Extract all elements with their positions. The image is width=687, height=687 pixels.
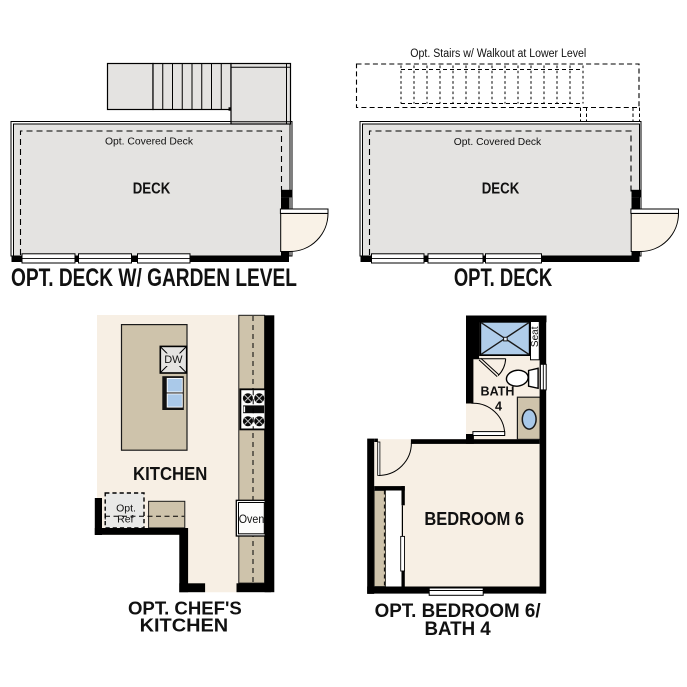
svg-text:Opt. Covered Deck: Opt. Covered Deck (105, 137, 194, 148)
svg-text:4: 4 (495, 400, 502, 414)
svg-text:DECK: DECK (482, 181, 520, 198)
svg-text:Ref: Ref (117, 513, 133, 525)
svg-text:BATH 4: BATH 4 (424, 619, 491, 640)
svg-text:DW: DW (164, 354, 183, 366)
svg-text:KITCHEN: KITCHEN (140, 615, 229, 635)
svg-text:Opt. Covered Deck: Opt. Covered Deck (454, 137, 542, 148)
svg-text:Oven: Oven (239, 512, 265, 526)
svg-text:Seat: Seat (530, 326, 541, 347)
svg-text:DECK: DECK (133, 181, 171, 198)
svg-text:OPT. DECK W/ GARDEN LEVEL: OPT. DECK W/ GARDEN LEVEL (11, 264, 297, 292)
svg-text:Opt. Stairs w/ Walkout at Lowe: Opt. Stairs w/ Walkout at Lower Level (410, 48, 586, 60)
svg-text:KITCHEN: KITCHEN (133, 463, 207, 484)
svg-text:OPT. DECK: OPT. DECK (454, 264, 552, 292)
svg-text:BATH: BATH (481, 385, 515, 399)
svg-text:BEDROOM 6: BEDROOM 6 (424, 508, 524, 529)
